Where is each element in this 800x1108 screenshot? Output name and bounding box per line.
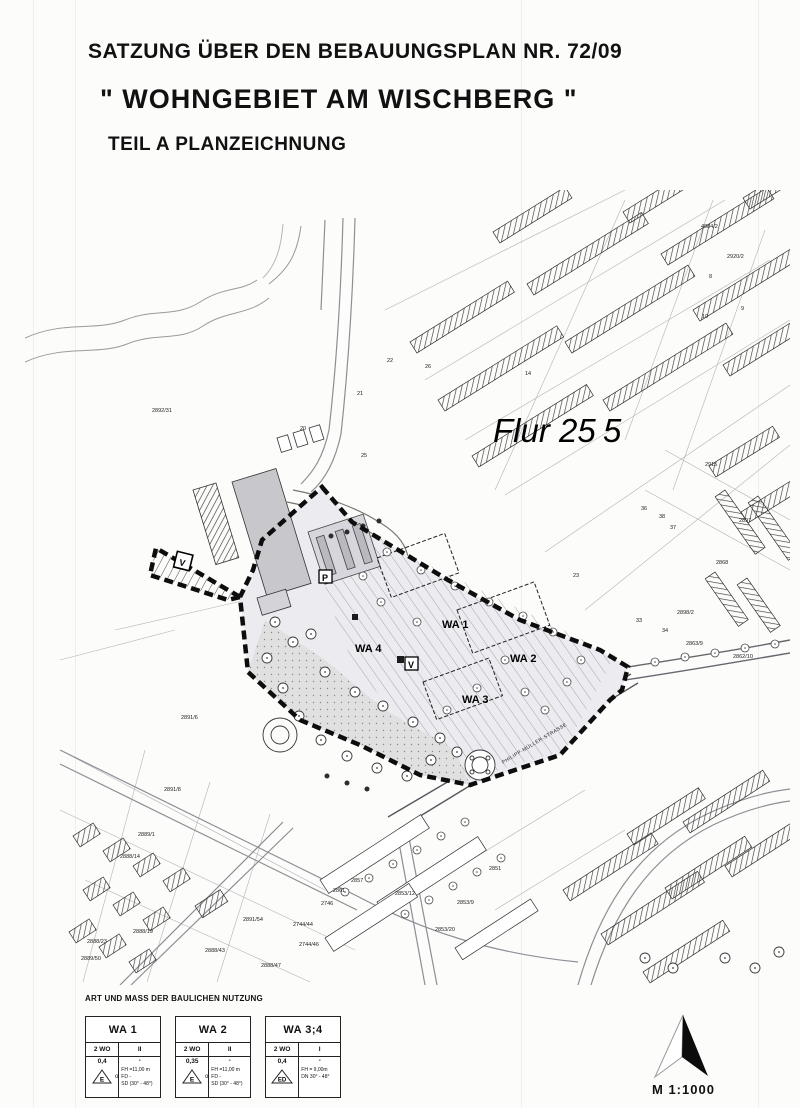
stream-lines	[25, 224, 301, 362]
legend-zone-name: WA 2	[176, 1017, 250, 1043]
circle-symbol: o	[115, 1074, 118, 1080]
legend-dash: -	[209, 1057, 250, 1067]
triangle-ed-icon: ED	[271, 1069, 293, 1084]
plan-drawing-area: Flur 25 5 WA 1 WA 2 WA 3 WA 4 V V P PHIL…	[25, 190, 790, 985]
parcel-label: 2857	[351, 878, 363, 884]
parcel-label: 10	[702, 314, 708, 320]
parcel-label: 2898/2	[677, 610, 694, 616]
legend-table-wa2: WA 2 2 WO II 0,35 E o - FH =11,00 m	[175, 1016, 251, 1098]
parcel-label: 2888/43	[205, 948, 225, 954]
parcel-label: 14	[525, 371, 531, 377]
legend-line: FH = 9,00m	[301, 1067, 340, 1074]
legend-floors: II	[119, 1043, 160, 1056]
zone-label-wa1: WA 1	[442, 619, 469, 631]
parcel-label: 2897	[739, 518, 751, 524]
parcel-label: 2851	[489, 866, 501, 872]
v-area-marker: V	[174, 551, 193, 570]
zone-label-wa4: WA 4	[355, 643, 382, 655]
north-arrow-icon	[646, 1010, 726, 1090]
parcel-label: 9	[741, 306, 744, 312]
parcel-label: 2891/54	[243, 917, 263, 923]
triangle-e-icon: E	[182, 1069, 202, 1084]
zone-label-wa2: WA 2	[510, 653, 537, 665]
parcel-label: 2915	[705, 462, 717, 468]
legend-wo: 2 WO	[176, 1043, 209, 1056]
legend-line: FD -	[211, 1074, 250, 1081]
parcel-label: 34	[662, 628, 668, 634]
parcel-label: 2861	[333, 888, 345, 894]
parcel-label: 2888/47	[261, 963, 281, 969]
legend-zone-name: WA 1	[86, 1017, 160, 1043]
v-inner-marker: V	[405, 657, 418, 670]
parcel-label: 25	[361, 453, 367, 459]
legend-grz: 0,4	[278, 1058, 287, 1065]
legend-floors: I	[299, 1043, 340, 1056]
parcel-label: 2863/9	[686, 641, 703, 647]
parcel-label: 38	[659, 514, 665, 520]
legend-line: FH =11,00 m	[211, 1067, 250, 1074]
parcel-label: 2744/46	[299, 942, 319, 948]
parcel-label: 2744/44	[293, 922, 313, 928]
svg-text:P: P	[322, 573, 328, 583]
flur-label-ghost: 5	[603, 412, 622, 449]
legend-line: FD -	[121, 1074, 160, 1081]
legend-title: ART UND MASS DER BAULICHEN NUTZUNG	[85, 994, 263, 1003]
legend-grz: 0,4	[98, 1058, 107, 1065]
legend-tables: WA 1 2 WO II 0,4 E o - FH =11,00 m	[85, 1016, 341, 1098]
plan-sheet: SATZUNG ÜBER DEN BEBAUUNGSPLAN NR. 72/09…	[0, 0, 800, 1108]
svg-text:ED: ED	[278, 1078, 287, 1084]
parcel-label: 22	[387, 358, 393, 364]
legend-line: SD (30° - 48°)	[121, 1081, 160, 1088]
parcel-label: 2892/31	[152, 408, 172, 414]
legend-wo: 2 WO	[266, 1043, 299, 1056]
legend-table-wa34: WA 3;4 2 WO I 0,4 ED - FH = 9,00m	[265, 1016, 341, 1098]
parcel-label: 21	[357, 391, 363, 397]
legend-table-wa1: WA 1 2 WO II 0,4 E o - FH =11,00 m	[85, 1016, 161, 1098]
zone-label-wa3: WA 3	[462, 694, 489, 706]
parcel-label: 2746	[321, 901, 333, 907]
parcel-label: 2853/9	[457, 900, 474, 906]
parcel-label: 2888/19	[133, 929, 153, 935]
legend-grz: 0,35	[186, 1058, 199, 1065]
document-title: SATZUNG ÜBER DEN BEBAUUNGSPLAN NR. 72/09	[88, 40, 622, 64]
legend-dash: -	[299, 1057, 340, 1067]
legend-wo: 2 WO	[86, 1043, 119, 1056]
parcel-label: 2889/50	[81, 956, 101, 962]
triangle-e-icon: E	[92, 1069, 112, 1084]
legend-dash: -	[119, 1057, 160, 1067]
parcel-label: 2868	[716, 560, 728, 566]
parcel-label: 2891/6	[181, 715, 198, 721]
parcel-label: 4884/2	[701, 224, 718, 230]
legend-line: FH =11,00 m	[121, 1067, 160, 1074]
parcel-label: 8	[709, 274, 712, 280]
legend-line: DN 30° - 48°	[301, 1074, 340, 1081]
flur-label: Flur 25	[493, 412, 596, 449]
parcel-label: 2862/10	[733, 654, 753, 660]
parcel-label: 2888/23	[87, 939, 107, 945]
parcel-label: 2891/8	[164, 787, 181, 793]
parcel-label: 33	[636, 618, 642, 624]
parcel-label: 2853/12	[395, 891, 415, 897]
parcel-label: 26	[425, 364, 431, 370]
legend-line: SD (30° - 48°)	[211, 1081, 250, 1088]
parcel-label: 2889/1	[138, 832, 155, 838]
plan-interior	[150, 425, 628, 792]
plan-name-title: " WOHNGEBIET AM WISCHBERG "	[100, 84, 578, 115]
legend-floors: II	[209, 1043, 250, 1056]
svg-text:E: E	[190, 1077, 195, 1084]
legend-zone-name: WA 3;4	[266, 1017, 340, 1043]
part-a-subtitle: TEIL A PLANZEICHNUNG	[108, 134, 346, 156]
parking-marker: P	[319, 570, 332, 583]
parcel-label: 20	[300, 426, 306, 432]
parcel-label: 23	[573, 573, 579, 579]
parcel-label: 2920/2	[727, 254, 744, 260]
svg-text:E: E	[100, 1077, 105, 1084]
plan-map: Flur 25 5 WA 1 WA 2 WA 3 WA 4 V V P PHIL…	[25, 190, 790, 985]
parcel-label: 36	[641, 506, 647, 512]
parcel-label: 2888/14	[120, 854, 140, 860]
scale-label: M 1:1000	[652, 1082, 715, 1097]
svg-text:V: V	[408, 660, 414, 670]
parcel-label: 2853/20	[435, 927, 455, 933]
parcel-label: 37	[670, 525, 676, 531]
circle-symbol: o	[205, 1074, 208, 1080]
